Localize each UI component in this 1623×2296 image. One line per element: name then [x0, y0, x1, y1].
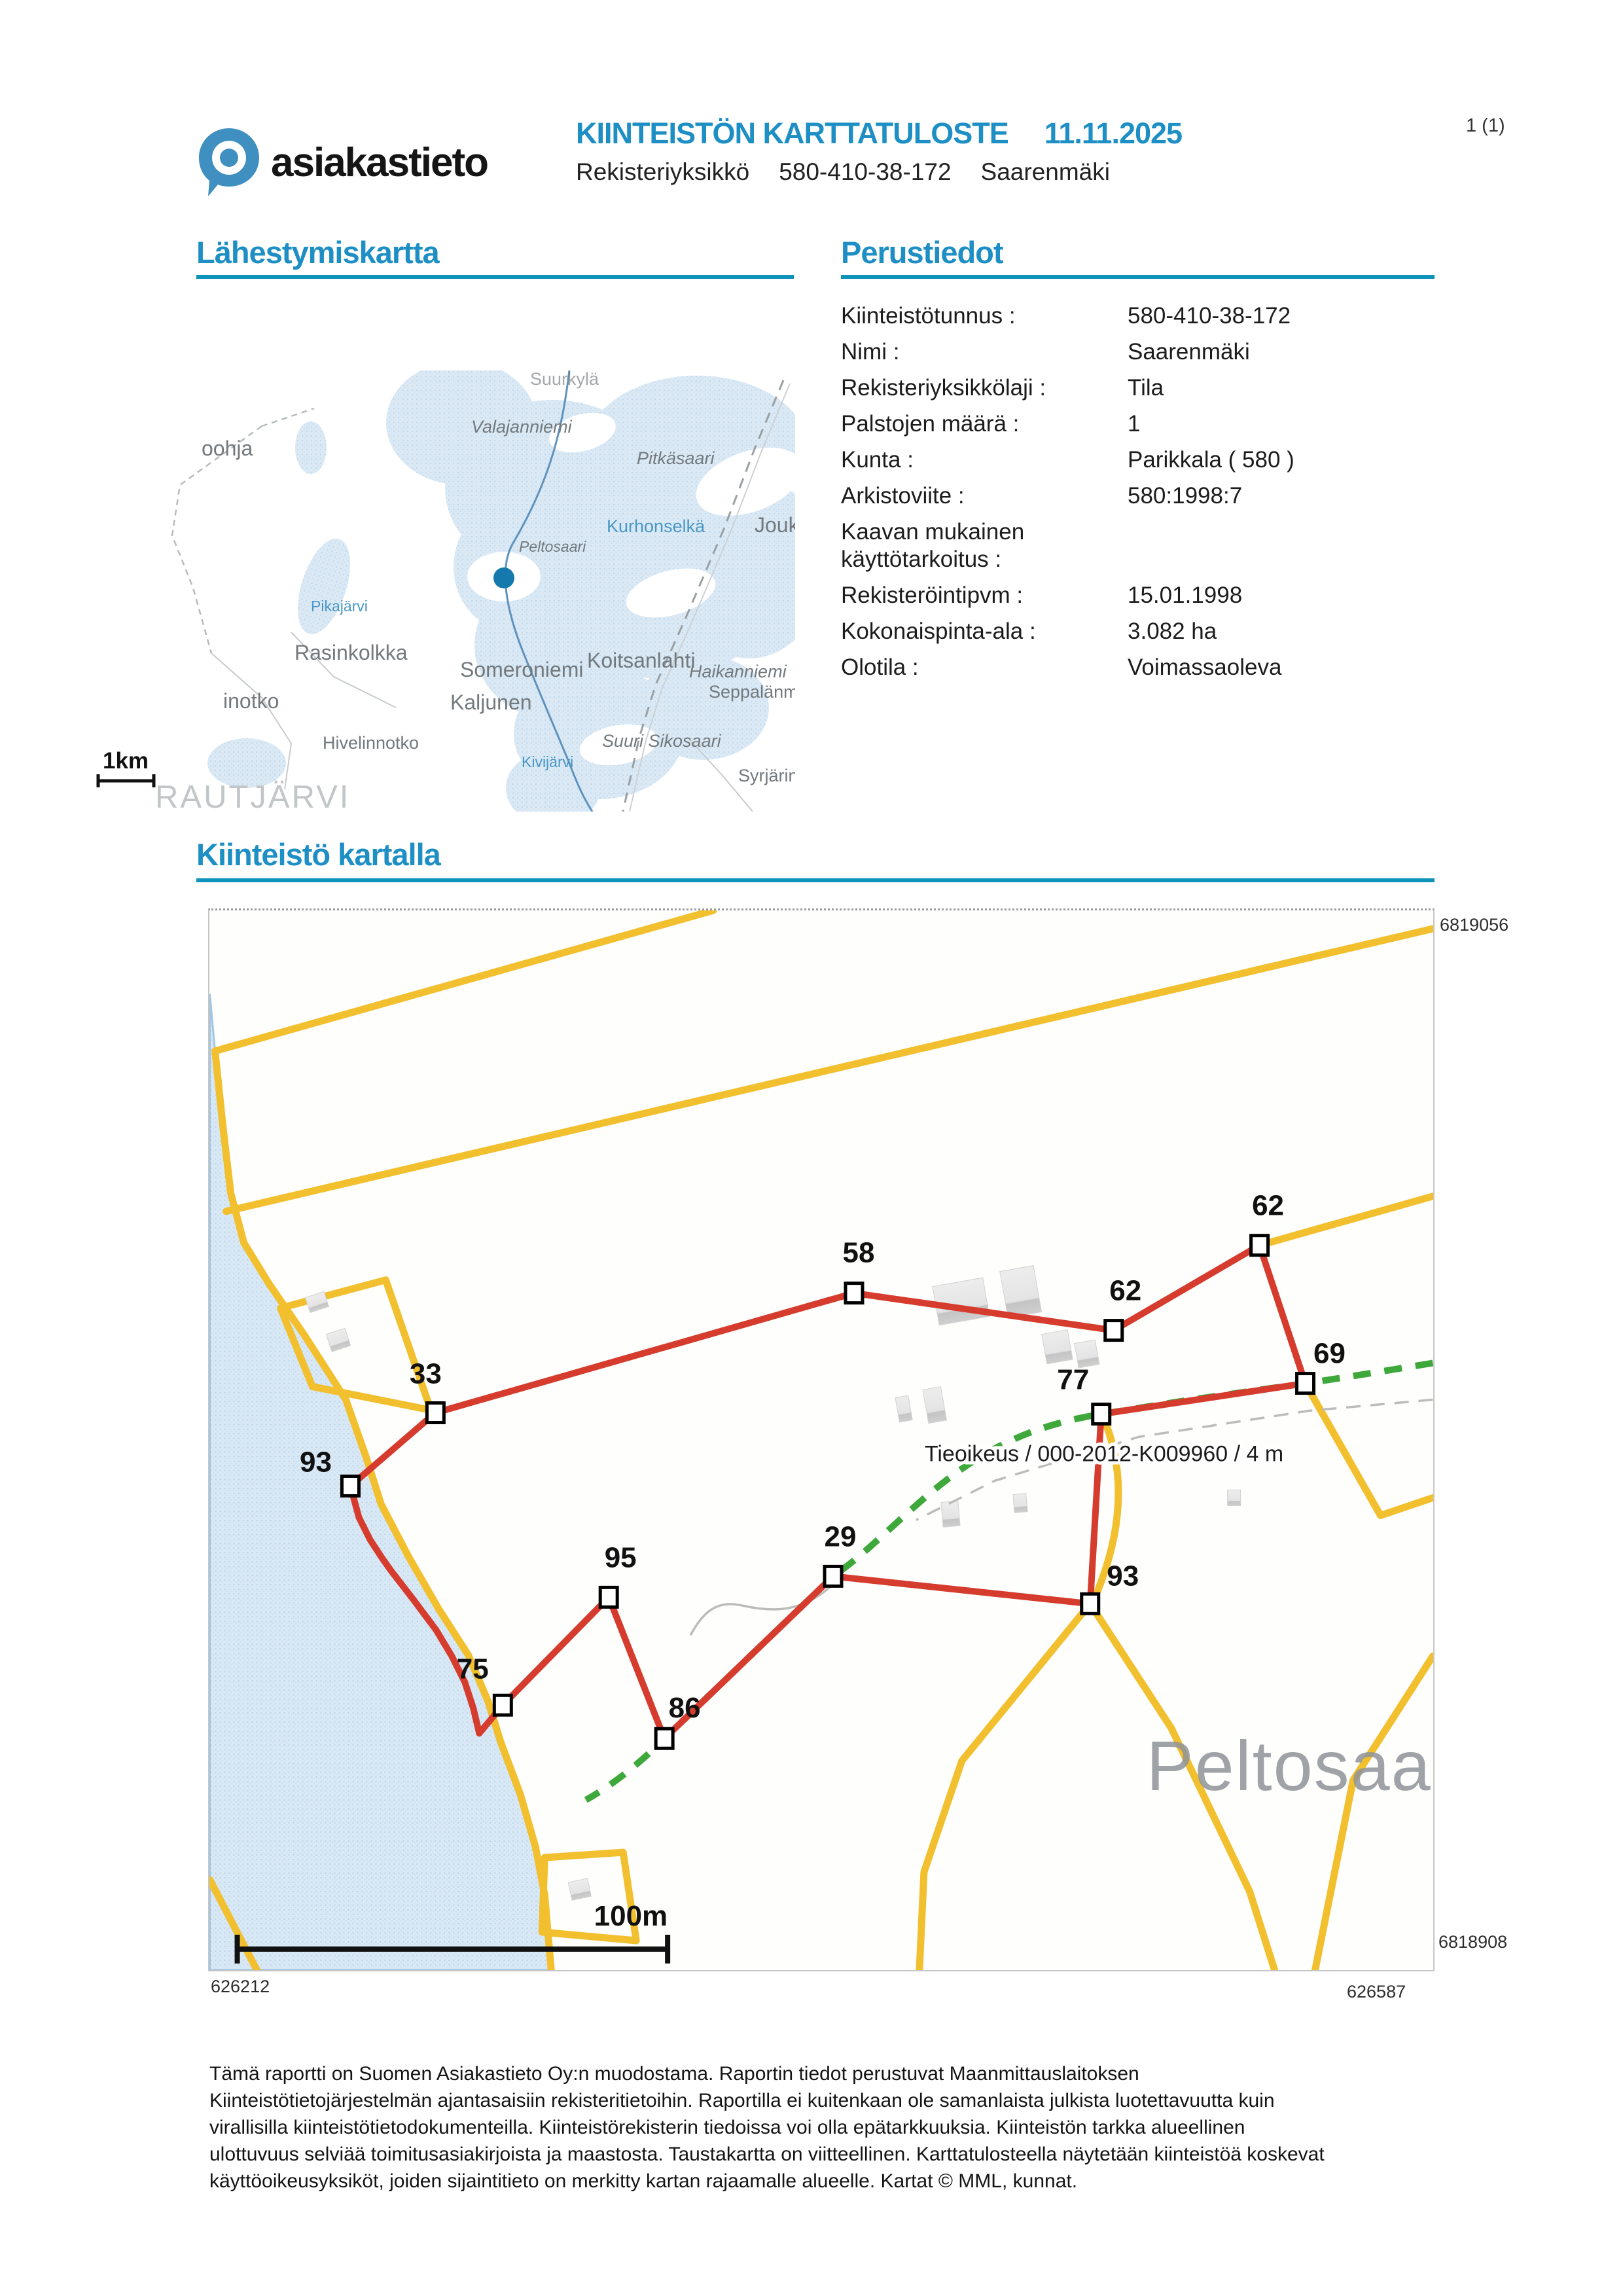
property-map: Peltosaa Tieoikeus / 000-2012-K009960 / …	[208, 908, 1435, 1971]
place-label: Someroniemi	[460, 658, 584, 681]
register-unit-name: Saarenmäki	[981, 158, 1110, 185]
report-date: 11.11.2025	[1044, 117, 1182, 150]
building-symbol	[326, 1328, 350, 1352]
property-map-heading: Kiinteistö kartalla	[196, 836, 440, 872]
boundary-vertex: 62	[1251, 1190, 1284, 1255]
info-row: Rekisteriyksikkölaji :Tila	[841, 374, 1436, 402]
boundary-vertex: 95	[600, 1541, 636, 1607]
vertex-marker	[1105, 1321, 1122, 1340]
document-page: asiakastieto KIINTEISTÖN KARTTATULOSTE11…	[0, 0, 1623, 2296]
place-label: oohja	[202, 437, 253, 460]
info-value: Saarenmäki	[1128, 338, 1436, 366]
vertex-number: 95	[605, 1541, 637, 1573]
info-label: Nimi :	[841, 338, 1128, 366]
approach-map: SuurkyläValajanniemiPitkäsaarioohjaKurho…	[95, 370, 795, 812]
place-label: Syrjärinne	[738, 766, 795, 785]
approach-map-heading: Lähestymiskartta	[196, 234, 439, 270]
building-symbol	[923, 1387, 947, 1424]
property-map-rule	[196, 878, 1435, 882]
vertex-marker	[342, 1476, 359, 1496]
info-label: Arkistoviite :	[841, 482, 1128, 510]
info-label: Kaavan mukainen käyttötarkoitus :	[841, 518, 1128, 573]
info-value: 580-410-38-172	[1128, 302, 1436, 330]
map-scale-label: 100m	[594, 1900, 668, 1932]
coord-top-right: 6819056	[1440, 915, 1508, 935]
vertex-number: 29	[825, 1520, 857, 1552]
info-label: Kunta :	[841, 446, 1128, 474]
info-label: Kiinteistötunnus :	[841, 302, 1128, 330]
place-label: Peltosaari	[519, 538, 586, 555]
disclaimer-line: Kiinteistötietojärjestelmän ajantasaisii…	[209, 2087, 1325, 2114]
report-title-text: KIINTEISTÖN KARTTATULOSTE	[576, 117, 1008, 150]
vertex-number: 62	[1252, 1190, 1284, 1222]
building-symbol	[1013, 1494, 1027, 1513]
vertex-number: 62	[1109, 1275, 1141, 1307]
disclaimer-line: käyttöoikeusyksiköt, joiden sijaintitiet…	[209, 2168, 1325, 2195]
vertex-number: 77	[1057, 1364, 1089, 1396]
boundary-vertices: 933358626269779329957586	[300, 1190, 1346, 1748]
info-label: Kokonaispinta-ala :	[841, 618, 1128, 645]
vertex-marker	[427, 1403, 444, 1423]
property-boundary	[350, 1246, 1305, 1739]
vertex-marker	[494, 1695, 511, 1715]
building-symbol	[933, 1278, 990, 1325]
area-name-label: Peltosaa	[1147, 1726, 1432, 1805]
info-value: 580:1998:7	[1128, 482, 1436, 510]
info-row: Olotila :Voimassaoleva	[841, 654, 1436, 681]
building-symbol	[568, 1878, 591, 1901]
place-label: Valajanniemi	[471, 417, 573, 437]
disclaimer-line: virallisilla kiinteistötietodokumenteill…	[209, 2114, 1325, 2141]
approach-map-canvas: SuurkyläValajanniemiPitkäsaarioohjaKurho…	[95, 370, 795, 812]
place-label: Kurhonselkä	[607, 516, 705, 536]
place-label: Haikanniemi	[689, 662, 787, 681]
place-label: Hivelinnotko	[323, 733, 419, 753]
info-value: Tila	[1128, 374, 1436, 402]
place-label: RAUTJÄRVI	[155, 780, 350, 812]
vertex-number: 58	[843, 1237, 875, 1269]
info-value: 3.082 ha	[1128, 618, 1436, 645]
info-value: Voimassaoleva	[1128, 654, 1436, 681]
info-row: Arkistoviite :580:1998:7	[841, 482, 1436, 510]
info-row: Kunta :Parikkala ( 580 )	[841, 446, 1436, 474]
vertex-marker	[1251, 1236, 1268, 1255]
coord-bottom-left: 626212	[211, 1977, 270, 1997]
vertex-number: 93	[1107, 1560, 1139, 1592]
disclaimer-text: Tämä raportti on Suomen Asiakastieto Oy:…	[209, 2060, 1325, 2195]
building-symbol	[305, 1291, 329, 1312]
place-label: Pikajärvi	[311, 598, 368, 615]
place-label: Pitkäsaari	[637, 448, 715, 468]
info-value	[1128, 518, 1436, 573]
vertex-marker	[1297, 1374, 1314, 1393]
building-symbol	[1228, 1490, 1241, 1505]
place-label: Kivijärvi	[522, 753, 573, 770]
vertex-number: 75	[457, 1653, 489, 1685]
vertex-number: 69	[1313, 1338, 1346, 1370]
info-label: Olotila :	[841, 654, 1128, 681]
vertex-marker	[825, 1566, 842, 1586]
info-row: Rekisteröintipvm :15.01.1998	[841, 582, 1436, 609]
place-label: inotko	[223, 689, 279, 713]
vertex-marker	[1082, 1594, 1099, 1613]
info-value: Parikkala ( 580 )	[1128, 446, 1436, 474]
place-label: Kaljunen	[450, 691, 532, 714]
building-symbol	[941, 1501, 960, 1527]
building-symbol	[1000, 1266, 1042, 1318]
place-label: Suuri Sikosaari	[602, 731, 722, 751]
logo-pin-icon	[196, 126, 262, 199]
property-map-canvas: Peltosaa Tieoikeus / 000-2012-K009960 / …	[209, 910, 1433, 1970]
info-value: 15.01.1998	[1128, 582, 1436, 609]
info-value: 1	[1128, 410, 1436, 438]
coord-bottom-right: 6818908	[1438, 1932, 1507, 1952]
register-unit-id: 580-410-38-172	[779, 158, 951, 185]
info-row: Kiinteistötunnus :580-410-38-172	[841, 302, 1436, 330]
register-unit-line: Rekisteriyksikkö580-410-38-172Saarenmäki	[576, 158, 1139, 186]
vertex-number: 86	[669, 1692, 701, 1724]
vertex-marker	[656, 1729, 673, 1748]
disclaimer-line: ulottuvuus selviää toimitusasiakirjoista…	[209, 2141, 1325, 2168]
approach-scale-bar	[98, 774, 154, 787]
lake-water	[210, 994, 550, 1970]
property-location-dot	[493, 567, 514, 588]
approach-scale-label: 1km	[103, 748, 149, 774]
place-label: Koitsanlahti	[587, 649, 695, 672]
info-row: Kaavan mukainen käyttötarkoitus :	[841, 518, 1436, 573]
boundary-vertex: 62	[1105, 1275, 1141, 1340]
logo-wordmark: asiakastieto	[271, 139, 488, 186]
boundary-vertex: 86	[656, 1692, 700, 1748]
building-symbol	[1042, 1330, 1073, 1364]
coord-bottom-center-right: 626587	[1347, 1982, 1406, 2002]
easement-label: Tieoikeus / 000-2012-K009960 / 4 m	[925, 1441, 1283, 1466]
page-number: 1 (1)	[1466, 115, 1505, 137]
report-title: KIINTEISTÖN KARTTATULOSTE11.11.2025	[576, 117, 1182, 151]
place-label: Joukio	[755, 513, 795, 537]
vertex-number: 33	[410, 1358, 442, 1390]
info-row: Kokonaispinta-ala :3.082 ha	[841, 618, 1436, 645]
place-label: Seppalänmäki	[709, 682, 795, 702]
place-label: Rasinkolkka	[294, 641, 408, 664]
info-label: Palstojen määrä :	[841, 410, 1128, 438]
vertex-marker	[1093, 1405, 1110, 1424]
info-row: Palstojen määrä :1	[841, 410, 1436, 438]
info-label: Rekisteriyksikkölaji :	[841, 374, 1128, 402]
disclaimer-line: Tämä raportti on Suomen Asiakastieto Oy:…	[209, 2060, 1325, 2087]
basic-info-rule	[841, 275, 1435, 279]
info-row: Nimi :Saarenmäki	[841, 338, 1436, 366]
basic-info-heading: Perustiedot	[841, 234, 1003, 270]
info-label: Rekisteröintipvm :	[841, 582, 1128, 609]
vertex-marker	[600, 1587, 617, 1607]
register-unit-label: Rekisteriyksikkö	[576, 158, 749, 185]
vertex-number: 93	[300, 1446, 332, 1478]
basic-info-table: Kiinteistötunnus :580-410-38-172Nimi :Sa…	[841, 302, 1436, 690]
vertex-marker	[846, 1283, 863, 1303]
asiakastieto-logo: asiakastieto	[196, 126, 488, 199]
boundary-vertex: 69	[1297, 1338, 1346, 1393]
approach-map-rule	[196, 275, 794, 279]
place-label: Suurkylä	[530, 370, 599, 389]
building-symbol	[895, 1395, 912, 1422]
